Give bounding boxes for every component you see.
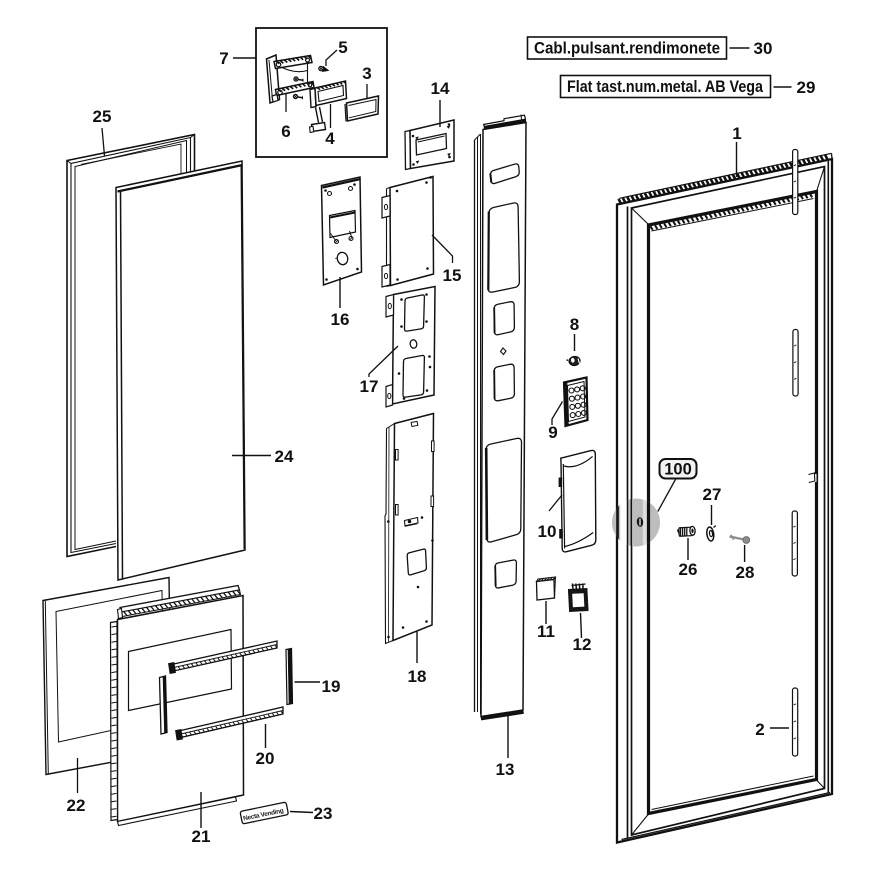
svg-text:26: 26	[679, 560, 698, 579]
svg-text:6: 6	[281, 122, 290, 141]
svg-text:20: 20	[256, 749, 275, 768]
svg-text:Flat tast.num.metal. AB Vega: Flat tast.num.metal. AB Vega	[567, 78, 764, 96]
svg-text:23: 23	[314, 804, 333, 823]
svg-text:28: 28	[736, 563, 755, 582]
svg-text:14: 14	[431, 79, 450, 98]
svg-text:17: 17	[360, 377, 379, 396]
svg-text:1: 1	[732, 124, 741, 143]
svg-text:27: 27	[703, 485, 722, 504]
svg-text:11: 11	[537, 622, 555, 641]
svg-text:7: 7	[219, 49, 228, 68]
svg-text:16: 16	[331, 310, 350, 329]
svg-text:3: 3	[362, 64, 371, 83]
svg-text:Cabl.pulsant.rendimonete: Cabl.pulsant.rendimonete	[534, 40, 720, 58]
svg-text:29: 29	[797, 78, 816, 97]
svg-text:5: 5	[338, 38, 347, 57]
svg-text:2: 2	[755, 720, 764, 739]
svg-text:4: 4	[325, 129, 335, 148]
svg-text:15: 15	[443, 266, 462, 285]
svg-text:24: 24	[275, 447, 294, 466]
svg-text:21: 21	[192, 827, 211, 846]
svg-text:10: 10	[538, 522, 557, 541]
svg-text:22: 22	[67, 796, 86, 815]
svg-text:18: 18	[408, 667, 427, 686]
svg-text:100: 100	[664, 461, 692, 479]
svg-text:25: 25	[93, 107, 112, 126]
svg-text:13: 13	[496, 760, 515, 779]
svg-text:8: 8	[570, 315, 579, 334]
svg-text:19: 19	[322, 677, 341, 696]
svg-text:9: 9	[548, 423, 557, 442]
svg-text:30: 30	[754, 39, 773, 58]
